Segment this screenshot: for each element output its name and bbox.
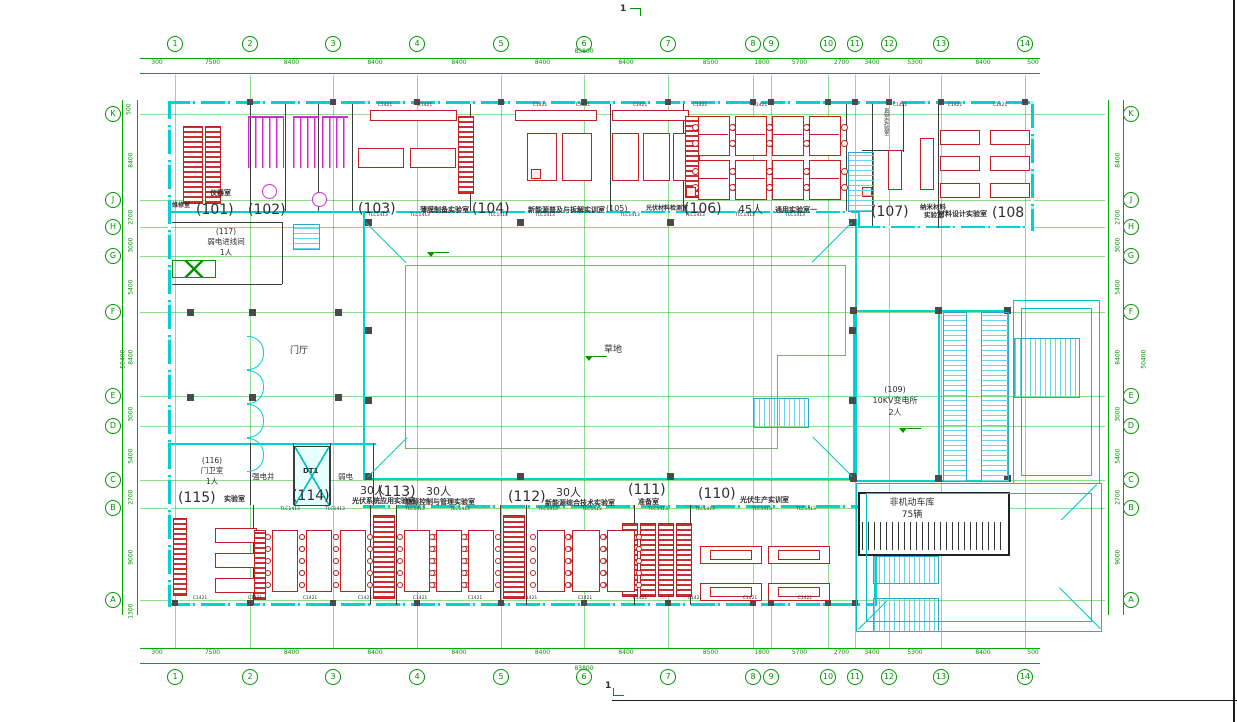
column <box>935 475 942 482</box>
room-109-name: 10KV变电所 <box>873 397 918 405</box>
window-tag: TLC1413 <box>410 214 430 219</box>
lab-bench <box>940 183 980 198</box>
lab-bench <box>940 156 980 171</box>
dim-right: 2700 <box>1115 490 1121 505</box>
room-116-capacity: 1人 <box>206 478 218 486</box>
wall <box>858 226 1034 228</box>
workstation-divider <box>698 178 728 179</box>
roller-shutter <box>172 260 216 278</box>
window-tag: C1421 <box>753 104 768 109</box>
workstation <box>735 116 767 156</box>
window-tag: C1421 <box>578 597 593 602</box>
room-110-name: 光伏生产实训室 <box>740 497 789 504</box>
chair-dot <box>397 582 403 588</box>
grid-bubble-top-3: 3 <box>325 36 341 52</box>
toilet-stalls <box>293 116 319 168</box>
dim-top: 8400 <box>975 60 990 66</box>
chair-dot <box>803 168 810 175</box>
grid-bubble-bottom-12: 12 <box>881 669 897 685</box>
window-tag: C1421 <box>303 597 318 602</box>
room-112-capacity: 30人 <box>556 487 581 499</box>
workstation <box>809 116 841 156</box>
column <box>172 600 178 606</box>
workstation-divider <box>809 178 839 179</box>
chair-dot <box>299 582 305 588</box>
grid-bubble-top-9: 9 <box>763 36 779 52</box>
chair-dot <box>265 582 271 588</box>
partition-wall <box>282 222 283 284</box>
partition-wall <box>352 104 353 211</box>
dim-top-edge-left: 300 <box>151 60 162 66</box>
chair-dot <box>530 534 536 540</box>
chair-dot <box>265 534 271 540</box>
stair <box>293 224 320 250</box>
class-bench <box>607 530 635 592</box>
column <box>517 473 524 480</box>
room-114-number: (114) <box>292 489 330 504</box>
chair-dot <box>600 558 606 564</box>
room-117-capacity: 1人 <box>220 249 232 257</box>
room-115-name: 实验室 <box>224 496 245 503</box>
dim-bottom: 8400 <box>367 650 382 656</box>
column <box>886 99 892 105</box>
partition-wall <box>500 505 501 605</box>
chair-dot <box>367 534 373 540</box>
chair-dot <box>429 582 435 588</box>
class-bench <box>306 530 332 592</box>
grid-bubble-top-2: 2 <box>242 36 258 52</box>
class-bench <box>572 530 600 592</box>
chair-dot <box>299 534 305 540</box>
class-bench <box>537 530 565 592</box>
grid-bubble-top-5: 5 <box>493 36 509 52</box>
wall <box>363 478 857 480</box>
chair-dot <box>495 534 501 540</box>
dim-bottom: 3400 <box>864 650 879 656</box>
chair-dot <box>636 534 642 540</box>
chair-dot <box>692 168 699 175</box>
column <box>850 307 857 314</box>
level-mark-line <box>593 356 607 357</box>
lab-bench <box>612 110 689 121</box>
dim-bottom-edge-right: 500 <box>1027 650 1038 656</box>
garage-count: 75辆 <box>902 511 922 520</box>
chair-dot <box>461 546 467 552</box>
dim-right: 3000 <box>1115 407 1121 422</box>
lab-bench <box>940 130 980 145</box>
chair-dot <box>495 582 501 588</box>
window-tag: TLC1413 <box>280 508 300 513</box>
workstation <box>698 116 730 156</box>
section-mark-bottom <box>613 688 624 696</box>
dimension-line <box>140 648 1040 649</box>
window-tag: TLC1413 <box>450 508 470 513</box>
grid-bubble-top-7: 7 <box>660 36 676 52</box>
window-tag: C1421 <box>193 597 208 602</box>
chair-dot <box>530 546 536 552</box>
weak-shaft-label: 弱电 <box>338 473 353 481</box>
room-113-capacity: 30人 <box>426 486 451 498</box>
dim-side-edge-top: 500 <box>127 103 133 114</box>
chair-dot <box>397 570 403 576</box>
dim-left: 2700 <box>128 209 134 224</box>
lawn-boundary <box>405 265 406 449</box>
chair-dot <box>367 570 373 576</box>
dim-bottom: 8400 <box>535 650 550 656</box>
window-tag: C1421 <box>798 597 813 602</box>
grid-bubble-right-E: E <box>1123 388 1139 404</box>
dim-right: 5400 <box>1115 449 1121 464</box>
column <box>330 99 336 105</box>
lab-bench <box>215 553 257 568</box>
window-tag: C1421 <box>993 104 1008 109</box>
partition-wall <box>285 104 286 211</box>
window-tag: C1421 <box>523 597 538 602</box>
lawn-boundary <box>845 265 846 356</box>
lab-bench <box>215 528 257 543</box>
column <box>665 99 671 105</box>
room-116-name: 门卫室 <box>201 467 224 475</box>
vacuum-lab-label: 真空实验室 <box>882 108 888 136</box>
chair-dot <box>397 546 403 552</box>
chair-dot <box>729 124 736 131</box>
room-108-name: 材料设计实验室 <box>938 211 987 218</box>
strong-shaft-label: 强电井 <box>252 473 275 481</box>
chair-dot <box>333 534 339 540</box>
chair-dot <box>333 558 339 564</box>
window-tag: TLC1413 <box>752 508 772 513</box>
grid-bubble-bottom-3: 3 <box>325 669 341 685</box>
frame-line-bottom <box>612 700 1237 701</box>
section-marker-bottom: 1 <box>605 682 611 691</box>
column <box>187 394 194 401</box>
grid-bubble-left-J: J <box>105 192 121 208</box>
workstation-divider <box>735 134 765 135</box>
window-tag: C1421 <box>743 597 758 602</box>
window-tag: TLC1413 <box>735 214 755 219</box>
room-116-number: (116) <box>202 457 222 465</box>
grid-bubble-bottom-14: 14 <box>1017 669 1033 685</box>
column <box>330 600 336 606</box>
lawn-boundary <box>777 355 846 356</box>
stair <box>943 312 967 482</box>
column <box>665 600 671 606</box>
lab-bench-inner <box>710 550 752 560</box>
dim-top-edge-right: 500 <box>1027 60 1038 66</box>
chair-dot <box>841 184 848 191</box>
grid-bubble-left-A: A <box>105 592 121 608</box>
window-tag: TLC1413 <box>685 214 705 219</box>
chair-dot <box>461 534 467 540</box>
dim-bottom: 8400 <box>284 650 299 656</box>
chair-dot <box>729 140 736 147</box>
column <box>849 397 856 404</box>
lab-bench <box>515 110 597 121</box>
equipment-rack <box>373 515 395 599</box>
column <box>1022 99 1028 105</box>
level-mark <box>427 252 435 257</box>
dim-top: 8400 <box>367 60 382 66</box>
chair-dot <box>600 534 606 540</box>
dimension-line <box>140 58 1040 59</box>
window-tag: C1421 <box>688 597 703 602</box>
toilet-fixture <box>262 184 277 199</box>
window-tag: C1421 <box>633 104 648 109</box>
grid-bubble-bottom-10: 10 <box>820 669 836 685</box>
workstation-divider <box>735 178 765 179</box>
level-mark-line <box>907 428 921 429</box>
dim-side-edge-bottom: 1300 <box>128 604 134 619</box>
window-tag: C1421 <box>693 104 708 109</box>
window-tag: C1421 <box>358 597 373 602</box>
section-mark-top <box>630 8 641 16</box>
class-bench <box>436 530 462 592</box>
dim-left: 5400 <box>128 280 134 295</box>
dim-left: 8400 <box>128 350 134 365</box>
roof-diagonal <box>812 437 852 477</box>
class-bench <box>272 530 298 592</box>
dim-bottom: 8500 <box>703 650 718 656</box>
equipment-rack <box>658 523 674 597</box>
chair-dot <box>729 168 736 175</box>
window-tag: C1421 <box>468 597 483 602</box>
column <box>335 309 342 316</box>
dim-bottom: 5300 <box>907 650 922 656</box>
equipment-rack <box>183 126 203 204</box>
grid-bubble-left-G: G <box>105 248 121 264</box>
dim-left: 3000 <box>128 407 134 422</box>
entrance-scallop <box>247 370 264 404</box>
dim-top: 2700 <box>834 60 849 66</box>
dim-top: 1800 <box>754 60 769 66</box>
grid-bubble-bottom-9: 9 <box>763 669 779 685</box>
window-tag: C1421 <box>893 104 908 109</box>
stair <box>753 398 809 428</box>
grid-bubble-bottom-4: 4 <box>409 669 425 685</box>
chair-dot <box>766 124 773 131</box>
workstation-divider <box>809 134 839 135</box>
room-110-number: (110) <box>698 487 736 502</box>
window-tag: C1421 <box>418 104 433 109</box>
window-tag: TLC1413 <box>582 508 602 513</box>
chair-dot <box>766 140 773 147</box>
room-111-name: 准备室 <box>638 499 659 506</box>
column <box>935 307 942 314</box>
stair <box>981 312 1009 482</box>
column <box>365 397 372 404</box>
roof-diagonal <box>366 223 406 263</box>
column <box>247 99 253 105</box>
chair-dot <box>600 570 606 576</box>
equipment-rack <box>640 523 656 597</box>
chair-dot <box>397 534 403 540</box>
room-107-number: (107) <box>871 205 909 220</box>
chair-dot <box>461 570 467 576</box>
room-113-name: 能源控制与管理实验室 <box>405 499 475 506</box>
chair-dot <box>766 168 773 175</box>
level-mark-line <box>435 252 449 253</box>
chair-dot <box>729 184 736 191</box>
roof-outline <box>866 493 1092 622</box>
instrument-room-label: 仪器室 <box>210 190 231 197</box>
chair-dot <box>495 570 501 576</box>
window-tag: TLC1413 <box>695 508 715 513</box>
window-tag: C1421 <box>378 104 393 109</box>
fire-hydrant <box>531 169 541 179</box>
chair-dot <box>565 534 571 540</box>
room-109-capacity: 2人 <box>888 409 901 417</box>
dim-top: 3400 <box>864 60 879 66</box>
chair-dot <box>692 124 699 131</box>
window-tag: TLC1413 <box>488 214 508 219</box>
grid-bubble-left-F: F <box>105 304 121 320</box>
toilet-stalls <box>322 116 348 168</box>
wall <box>1031 101 1034 231</box>
window-tag: C1421 <box>576 104 591 109</box>
entrance-scallop <box>247 404 264 438</box>
wall <box>168 101 171 607</box>
level-mark <box>899 428 907 433</box>
window-tag: C1421 <box>633 597 648 602</box>
frame-line-right <box>1233 0 1235 722</box>
dimension-line <box>1108 100 1109 615</box>
grid-bubble-top-11: 11 <box>847 36 863 52</box>
lab-bench <box>370 110 457 121</box>
dim-top-total: 83800 <box>574 49 593 55</box>
grid-bubble-bottom-1: 1 <box>167 669 183 685</box>
dim-left: 2700 <box>128 490 134 505</box>
chair-dot <box>265 570 271 576</box>
wall <box>938 310 940 482</box>
chair-dot <box>495 558 501 564</box>
dim-bottom: 1800 <box>754 650 769 656</box>
class-bench <box>404 530 430 592</box>
workstation <box>772 116 804 156</box>
column <box>187 309 194 316</box>
grid-bubble-top-13: 13 <box>933 36 949 52</box>
chair-dot <box>565 546 571 552</box>
dim-top: 8500 <box>703 60 718 66</box>
dim-right: 8400 <box>1115 350 1121 365</box>
column <box>667 473 674 480</box>
chair-dot <box>299 546 305 552</box>
lab-bench <box>562 133 592 181</box>
partition-wall <box>526 505 527 605</box>
grid-bubble-right-H: H <box>1123 219 1139 235</box>
lawn-label: 草地 <box>604 346 622 355</box>
chair-dot <box>397 558 403 564</box>
grid-bubble-right-B: B <box>1123 500 1139 516</box>
workstation <box>809 160 841 200</box>
room-111-number: (111) <box>628 483 666 498</box>
column <box>768 99 774 105</box>
chair-dot <box>429 534 435 540</box>
grid-bubble-right-C: C <box>1123 472 1139 488</box>
grid-bubble-right-J: J <box>1123 192 1139 208</box>
chair-dot <box>461 558 467 564</box>
partition-wall <box>903 104 904 152</box>
chair-dot <box>565 558 571 564</box>
grid-bubble-bottom-8: 8 <box>745 669 761 685</box>
grid-bubble-top-14: 14 <box>1017 36 1033 52</box>
chair-dot <box>803 124 810 131</box>
toilet-stalls <box>248 116 284 168</box>
dim-left: 3000 <box>128 237 134 252</box>
grid-bubble-right-A: A <box>1123 592 1139 608</box>
chair-dot <box>461 582 467 588</box>
dim-bottom: 5700 <box>792 650 807 656</box>
equipment-rack <box>458 116 474 194</box>
lab-bench <box>990 183 1030 198</box>
column <box>852 99 858 105</box>
equipment-rack <box>503 515 525 599</box>
chair-dot <box>530 558 536 564</box>
room-117-name: 弱电进线间 <box>207 238 245 246</box>
repair-room-label: 维修室 <box>172 203 190 209</box>
column <box>938 99 944 105</box>
partition-wall <box>370 505 371 605</box>
grid-bubble-top-8: 8 <box>745 36 761 52</box>
dimension-line <box>1123 100 1124 615</box>
elevator-label: DT1 <box>303 468 318 475</box>
dimension-line <box>140 73 1040 74</box>
window-tag: TLC1413 <box>785 214 805 219</box>
level-mark <box>585 356 593 361</box>
window-tag: C1421 <box>248 597 263 602</box>
grid-bubble-bottom-11: 11 <box>847 669 863 685</box>
chair-dot <box>333 570 339 576</box>
column <box>335 394 342 401</box>
dimension-line <box>137 100 138 615</box>
chair-dot <box>299 558 305 564</box>
dim-bottom: 8400 <box>451 650 466 656</box>
partition-wall <box>172 222 282 223</box>
dim-side-total: 50400 <box>1141 350 1147 369</box>
entrance-scallop <box>247 336 264 370</box>
grid-bubble-top-10: 10 <box>820 36 836 52</box>
chair-dot <box>495 546 501 552</box>
lab-bench <box>920 138 934 190</box>
dim-left: 8400 <box>128 153 134 168</box>
grid-line-horizontal <box>140 256 1105 257</box>
workstation-divider <box>772 178 802 179</box>
room-117-number: (117) <box>216 228 236 236</box>
window-tag: TLC1413 <box>620 214 640 219</box>
class-bench <box>468 530 494 592</box>
lab-bench <box>358 148 404 168</box>
floorplan-drawing: 1 1 112233445566778899101011111212131314… <box>0 0 1237 722</box>
grid-bubble-bottom-5: 5 <box>493 669 509 685</box>
wall <box>855 219 857 480</box>
chair-dot <box>636 558 642 564</box>
window-tag: TLC1413 <box>368 214 388 219</box>
section-marker-top: 1 <box>620 5 626 14</box>
workstation <box>735 160 767 200</box>
chair-dot <box>600 582 606 588</box>
dim-right: 3000 <box>1115 237 1121 252</box>
lab-bench <box>410 148 456 168</box>
chair-dot <box>367 582 373 588</box>
room-101-number: (101) <box>196 203 234 218</box>
chair-dot <box>265 558 271 564</box>
room-108-number: (108 <box>992 206 1024 221</box>
column <box>249 309 256 316</box>
wall <box>363 213 365 480</box>
partition-wall <box>846 104 847 211</box>
dim-top: 8400 <box>451 60 466 66</box>
window-tag: TLC1413 <box>648 508 668 513</box>
grid-bubble-bottom-7: 7 <box>660 669 676 685</box>
